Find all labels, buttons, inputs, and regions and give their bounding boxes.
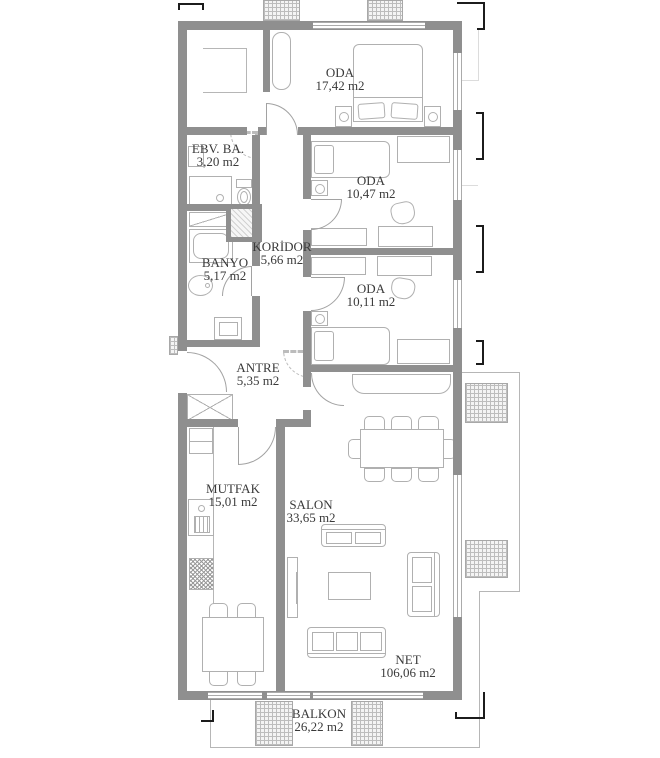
window: [453, 53, 462, 110]
window: [208, 692, 262, 699]
desk: [378, 226, 433, 247]
stove: [189, 558, 214, 590]
room-area: 3,20 m2: [192, 155, 244, 168]
room-area: 5,66 m2: [252, 253, 311, 266]
interior-wall: [276, 427, 285, 691]
hatch-pier: [169, 336, 178, 355]
interior-wall: [303, 311, 311, 387]
facade-line: [462, 185, 478, 186]
door-arc-living: [311, 373, 344, 406]
lamp: [315, 314, 325, 324]
door-leaf: [311, 277, 345, 278]
interior-wall: [187, 340, 260, 347]
pillow: [314, 145, 334, 174]
room-label-bathroom: BANYO 5,17 m2: [202, 256, 248, 282]
nightstand: [424, 106, 441, 127]
chair: [237, 603, 256, 618]
interior-wall: [311, 248, 453, 255]
sideboard: [352, 374, 451, 394]
dimension-mark: [476, 225, 482, 227]
washing-machine-door: [219, 322, 238, 336]
cushion: [360, 632, 382, 651]
hatch-pier: [263, 0, 300, 21]
kitchen-cabinet: [189, 428, 213, 454]
dimension-mark: [476, 363, 482, 365]
wardrobe: [397, 136, 450, 163]
dimension-mark: [201, 720, 214, 722]
closet-line: [203, 48, 247, 49]
dimension-mark: [178, 3, 180, 10]
single-bed: [311, 327, 390, 365]
chair: [209, 603, 228, 618]
tv-screen: [296, 572, 298, 604]
sofa-back-line: [322, 529, 385, 530]
dining-table: [360, 429, 444, 468]
drain: [216, 194, 224, 202]
balcony-pad: [351, 701, 383, 746]
room-label-bedroom2: ODA 10,47 m2: [346, 174, 395, 200]
wardrobe: [272, 32, 291, 90]
cabinet-line: [190, 441, 212, 442]
dimension-mark: [483, 692, 485, 719]
pillow: [357, 102, 385, 120]
balcony-outline: [519, 372, 520, 592]
door-arc-kitchen: [238, 427, 276, 465]
dimension-mark: [476, 158, 482, 160]
chair: [348, 439, 361, 459]
balcony-pad: [465, 383, 508, 423]
interior-wall: [187, 419, 238, 427]
room-area: 5,17 m2: [202, 269, 248, 282]
cushion: [355, 532, 381, 544]
tv-unit: [287, 557, 298, 618]
dimension-mark: [178, 3, 204, 5]
chair: [391, 416, 412, 430]
room-area: 10,11 m2: [347, 295, 396, 308]
dimension-mark: [483, 2, 485, 30]
window: [453, 150, 462, 200]
balcony-pad: [255, 701, 293, 746]
toilet-bowl: [240, 191, 248, 203]
dimension-mark: [477, 28, 483, 30]
interior-wall: [303, 135, 311, 199]
dimension-mark: [476, 340, 482, 342]
room-label-ensuite-bath: EBV. BA. 3,20 m2: [192, 142, 244, 168]
closet-stub-wall: [263, 30, 270, 92]
blanket-line: [354, 97, 422, 98]
door-leaf: [251, 266, 252, 296]
room-label-entry-hall: ANTRE 5,35 m2: [236, 361, 279, 387]
dimension-mark: [455, 712, 457, 719]
lamp: [315, 184, 325, 194]
chair: [237, 671, 256, 686]
room-area: 26,22 m2: [292, 720, 346, 733]
interior-wall: [187, 204, 228, 211]
sofa-back-line: [308, 653, 385, 654]
chair: [364, 416, 385, 430]
faucet: [198, 505, 205, 512]
kitchen-table: [202, 617, 264, 672]
room-area: 10,47 m2: [346, 187, 395, 200]
wardrobe: [397, 339, 450, 364]
balcony-outline: [210, 700, 211, 748]
room-label-bedroom-main: ODA 17,42 m2: [315, 66, 364, 92]
shower: [189, 176, 232, 207]
window: [313, 22, 425, 29]
window: [453, 475, 462, 617]
net-area-label: NET 106,06 m2: [380, 653, 436, 679]
coffee-table: [328, 572, 371, 600]
desk-chair: [389, 200, 417, 227]
dimension-mark: [476, 112, 482, 114]
room-area: 33,65 m2: [286, 511, 335, 524]
interior-wall: [187, 127, 247, 135]
dimension-mark: [482, 225, 484, 273]
room-label-living-room: SALON 33,65 m2: [286, 498, 335, 524]
dimension-mark: [482, 112, 484, 160]
chair: [418, 468, 439, 482]
hatch-pier: [367, 0, 403, 21]
cushion: [336, 632, 358, 651]
door-arc-bedroom-main: [266, 103, 298, 135]
faucet: [205, 283, 210, 288]
door-arc-bedroom3: [311, 277, 345, 311]
armchair: [407, 552, 440, 617]
door-leaf: [238, 427, 239, 465]
nightstand: [311, 311, 328, 326]
sofa-back-line: [434, 553, 435, 616]
door-leaf: [266, 103, 267, 135]
chair: [364, 468, 385, 482]
chair: [391, 468, 412, 482]
door-arc-bedroom2: [311, 199, 342, 230]
dimension-mark: [476, 271, 482, 273]
nightstand: [311, 180, 328, 196]
interior-wall: [258, 127, 266, 135]
lamp: [428, 112, 438, 122]
desk: [377, 256, 432, 276]
floor-plan: ODA 17,42 m2 EBV. BA. 3,20 m2 ODA 10,47 …: [0, 0, 660, 758]
closet-line: [246, 48, 247, 93]
facade-line: [478, 28, 479, 81]
facade-line: [462, 80, 478, 81]
balcony-door: [267, 692, 310, 699]
balcony-outline: [210, 747, 480, 748]
balcony-pad: [465, 540, 508, 578]
room-label-corridor: KORİDOR 5,66 m2: [252, 240, 311, 266]
loveseat: [321, 524, 386, 547]
nightstand: [335, 106, 352, 127]
dimension-mark: [457, 2, 485, 4]
door-leaf: [311, 199, 342, 200]
room-area: 17,42 m2: [315, 79, 364, 92]
entry-closet: [187, 394, 233, 421]
closet-line: [203, 92, 247, 93]
room-area: 5,35 m2: [236, 374, 279, 387]
washing-machine: [214, 317, 242, 340]
cushion: [312, 632, 334, 651]
balcony-outline: [480, 591, 520, 592]
cushion: [412, 586, 432, 612]
dimension-mark: [482, 340, 484, 365]
pillow: [314, 331, 334, 361]
balcony-outline: [462, 372, 520, 373]
window: [313, 692, 423, 699]
dimension-mark: [456, 717, 485, 719]
balcony-outline: [479, 591, 480, 748]
dimension-mark: [202, 3, 204, 10]
room-label-balcony: BALKON 26,22 m2: [292, 707, 346, 733]
dresser: [311, 228, 367, 246]
chair: [418, 416, 439, 430]
door-arc-entrance: [187, 352, 227, 392]
cushion: [326, 532, 352, 544]
drying-rack: [194, 516, 210, 533]
window: [453, 280, 462, 328]
room-label-bedroom3: ODA 10,11 m2: [347, 282, 396, 308]
room-label-kitchen: MUTFAK 15,01 m2: [206, 482, 260, 508]
toilet-tank: [236, 179, 252, 188]
interior-wall: [311, 365, 453, 372]
lamp: [339, 112, 349, 122]
room-area: 15,01 m2: [206, 495, 260, 508]
interior-wall: [276, 419, 311, 427]
sofa: [307, 627, 386, 658]
cushion: [412, 557, 432, 583]
pillow: [390, 102, 418, 120]
net-area: 106,06 m2: [380, 666, 436, 679]
entrance-opening: [178, 351, 187, 393]
interior-wall: [298, 127, 453, 135]
dresser: [311, 257, 366, 275]
chair: [209, 671, 228, 686]
